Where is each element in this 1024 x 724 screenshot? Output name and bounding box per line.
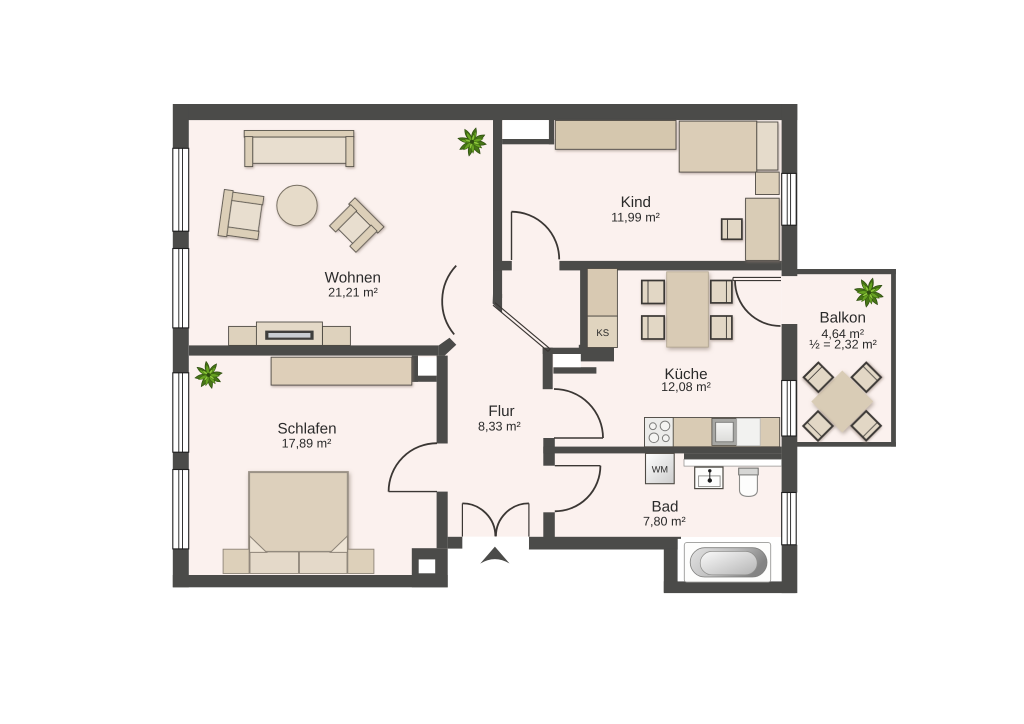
svg-text:12,08 m²: 12,08 m² — [661, 380, 711, 394]
svg-text:Schlafen: Schlafen — [277, 420, 336, 437]
svg-text:21,21 m²: 21,21 m² — [328, 286, 378, 300]
svg-text:11,99 m²: 11,99 m² — [611, 210, 660, 224]
svg-text:KS: KS — [596, 328, 609, 339]
svg-text:Flur: Flur — [488, 403, 514, 420]
svg-text:Bad: Bad — [651, 499, 678, 516]
svg-text:WM: WM — [652, 465, 668, 475]
svg-text:½ = 2,32 m²: ½ = 2,32 m² — [809, 338, 877, 352]
svg-text:17,89 m²: 17,89 m² — [282, 436, 332, 450]
svg-text:8,33 m²: 8,33 m² — [478, 420, 521, 434]
svg-text:Balkon: Balkon — [819, 310, 865, 327]
svg-text:Wohnen: Wohnen — [325, 269, 381, 286]
svg-text:Kind: Kind — [621, 194, 651, 211]
svg-text:7,80 m²: 7,80 m² — [643, 515, 686, 529]
